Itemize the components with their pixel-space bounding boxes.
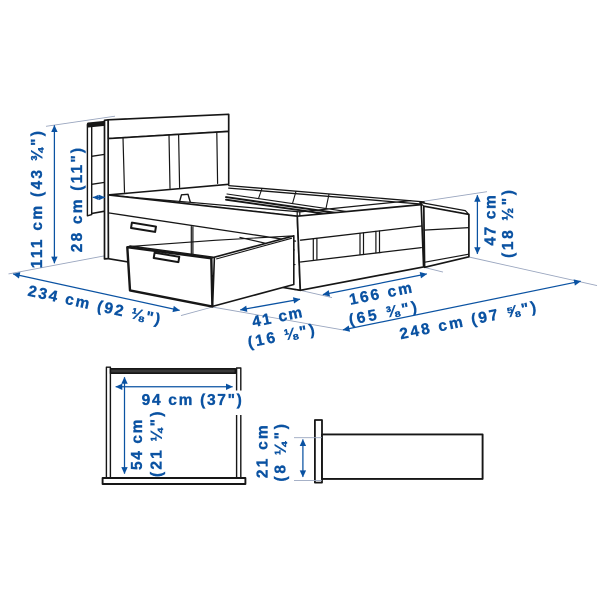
svg-text:(8 ¼"): (8 ¼") [273,421,290,481]
svg-text:111 cm (43 ¾"): 111 cm (43 ¾") [29,129,46,269]
svg-text:94 cm (37"): 94 cm (37") [142,392,244,409]
svg-text:(21 ¼"): (21 ¼") [149,409,166,477]
svg-text:54 cm: 54 cm [129,418,146,470]
svg-text:21 cm: 21 cm [255,423,272,478]
svg-text:(18 ½"): (18 ½") [500,188,517,258]
svg-text:47 cm: 47 cm [482,194,499,246]
svg-text:28 cm (11"): 28 cm (11") [69,146,86,253]
